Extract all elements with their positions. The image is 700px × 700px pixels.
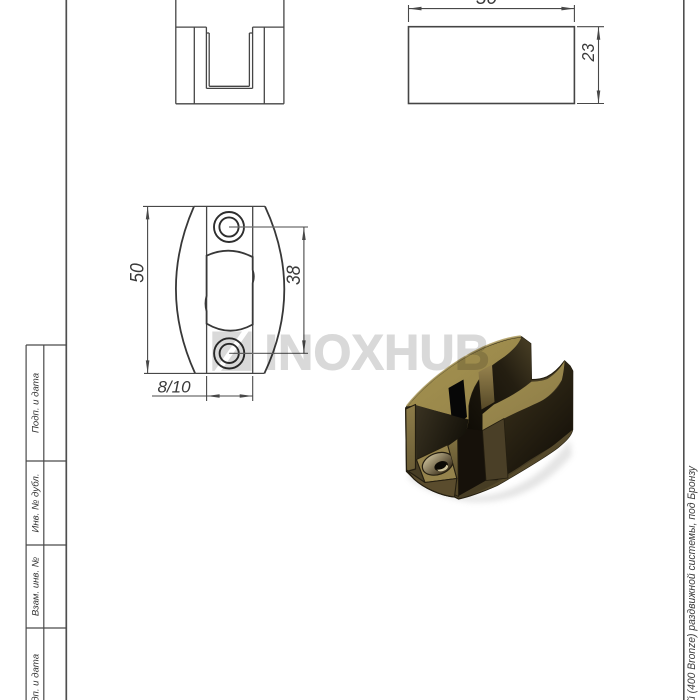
svg-text:INOXHUB: INOXHUB <box>264 324 490 381</box>
svg-text:23: 23 <box>578 43 598 62</box>
svg-text:й (400 Bronze) раздвижной сист: й (400 Bronze) раздвижной системы, под Б… <box>686 465 698 700</box>
svg-text:50: 50 <box>476 0 498 9</box>
svg-text:Взам. инв. №: Взам. инв. № <box>31 557 42 616</box>
svg-text:Инв. № дубл.: Инв. № дубл. <box>31 473 42 532</box>
svg-text:50: 50 <box>128 263 149 283</box>
svg-text:Подп. и дата: Подп. и дата <box>31 373 42 433</box>
svg-text:38: 38 <box>284 265 305 285</box>
svg-text:Подп. и дата: Подп. и дата <box>31 654 42 700</box>
svg-text:8/10: 8/10 <box>157 378 191 397</box>
